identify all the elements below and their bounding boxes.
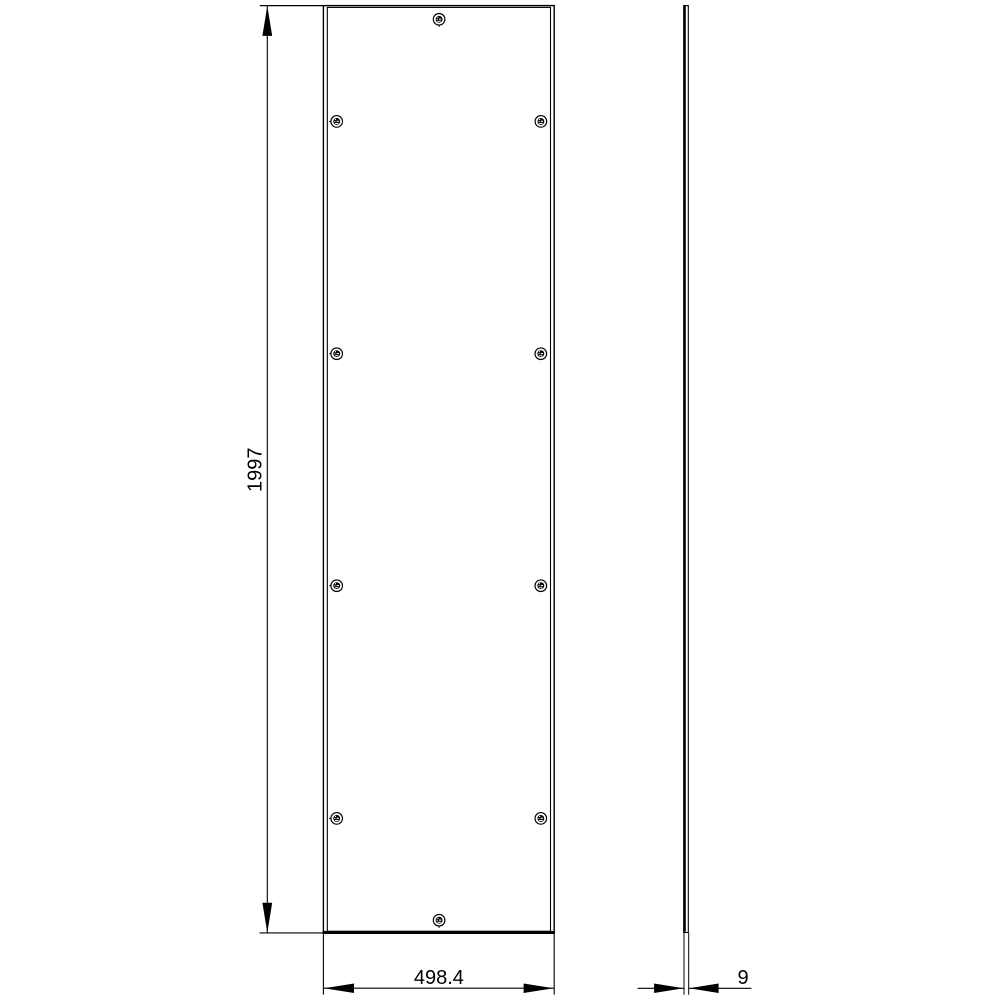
svg-text:1997: 1997 xyxy=(245,448,267,493)
svg-text:9: 9 xyxy=(737,967,748,989)
svg-text:498.4: 498.4 xyxy=(414,967,464,989)
